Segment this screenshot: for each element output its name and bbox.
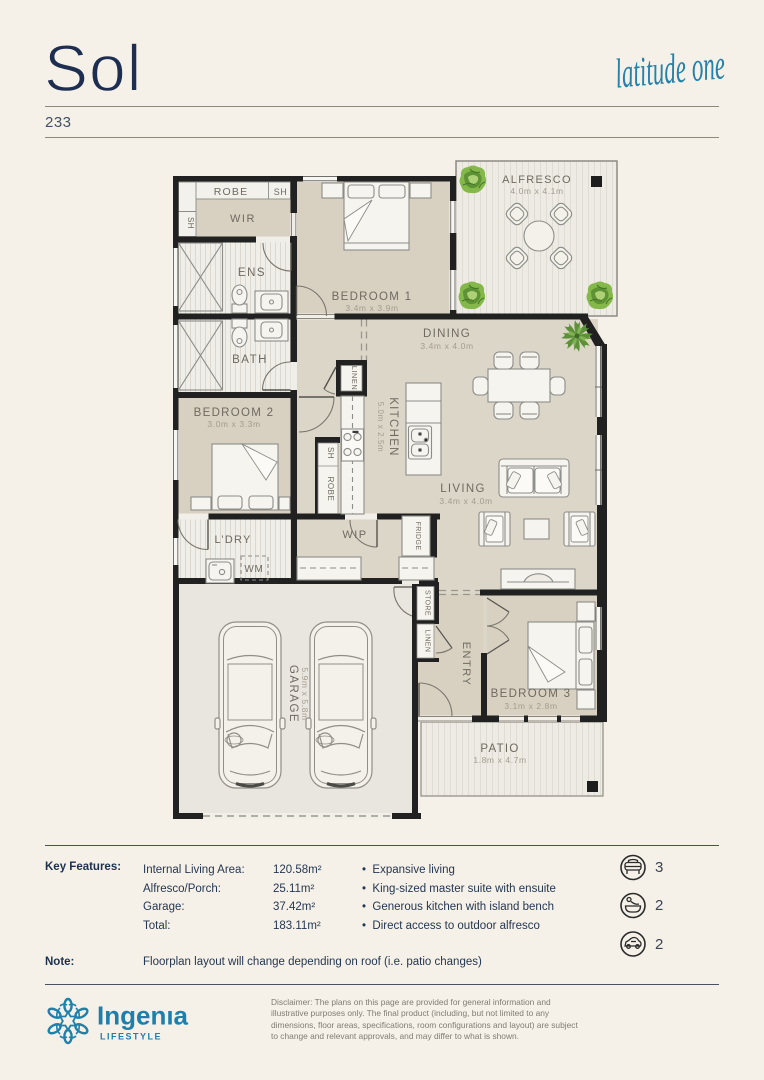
svg-text:5.0m x 2.5m: 5.0m x 2.5m [376,402,385,453]
svg-text:SH: SH [274,187,288,197]
svg-text:SH: SH [186,217,195,229]
svg-text:1.8m x 4.7m: 1.8m x 4.7m [473,755,526,765]
svg-text:LIVING: LIVING [440,483,486,495]
svg-text:BEDROOM 3: BEDROOM 3 [491,688,572,700]
svg-text:BATH: BATH [232,354,268,366]
svg-text:3.4m x 4.0m: 3.4m x 4.0m [439,496,492,506]
svg-text:ROBE: ROBE [214,186,249,198]
svg-text:BEDROOM 2: BEDROOM 2 [194,407,275,419]
svg-text:KITCHEN: KITCHEN [387,397,399,457]
svg-text:SH: SH [326,447,335,459]
svg-text:ENTRY: ENTRY [460,642,472,687]
svg-text:5.9m x 5.8m: 5.9m x 5.8m [300,667,310,720]
svg-text:3.0m x 3.3m: 3.0m x 3.3m [207,419,260,429]
svg-text:3: 3 [655,859,663,876]
svg-text:2: 2 [655,897,663,914]
svg-text:FRIDGE: FRIDGE [414,522,421,551]
svg-text:PATIO: PATIO [480,743,519,755]
svg-text:BEDROOM 1: BEDROOM 1 [332,291,413,303]
svg-text:L’DRY: L’DRY [215,534,252,546]
svg-text:ENS: ENS [238,267,266,279]
svg-text:ROBE: ROBE [326,477,335,502]
svg-text:4.0m x 4.1m: 4.0m x 4.1m [510,186,563,196]
svg-text:2: 2 [655,936,663,953]
svg-text:3.4m x 4.0m: 3.4m x 4.0m [420,341,473,351]
svg-text:LIFESTYLE: LIFESTYLE [100,1032,162,1042]
svg-text:3.4m x 3.9m: 3.4m x 3.9m [345,303,398,313]
svg-text:Ingenıa: Ingenıa [97,1001,189,1031]
svg-text:WM: WM [244,564,263,575]
svg-text:LINEN: LINEN [424,630,431,653]
svg-text:WIP: WIP [342,529,367,541]
svg-text:WIR: WIR [230,213,256,225]
svg-text:3.1m x 2.8m: 3.1m x 2.8m [504,701,557,711]
svg-text:GARAGE: GARAGE [287,665,299,723]
svg-text:LINEN: LINEN [350,366,359,391]
svg-text:ALFRESCO: ALFRESCO [502,174,572,186]
svg-text:DINING: DINING [423,328,471,340]
svg-text:STORE: STORE [424,590,431,616]
